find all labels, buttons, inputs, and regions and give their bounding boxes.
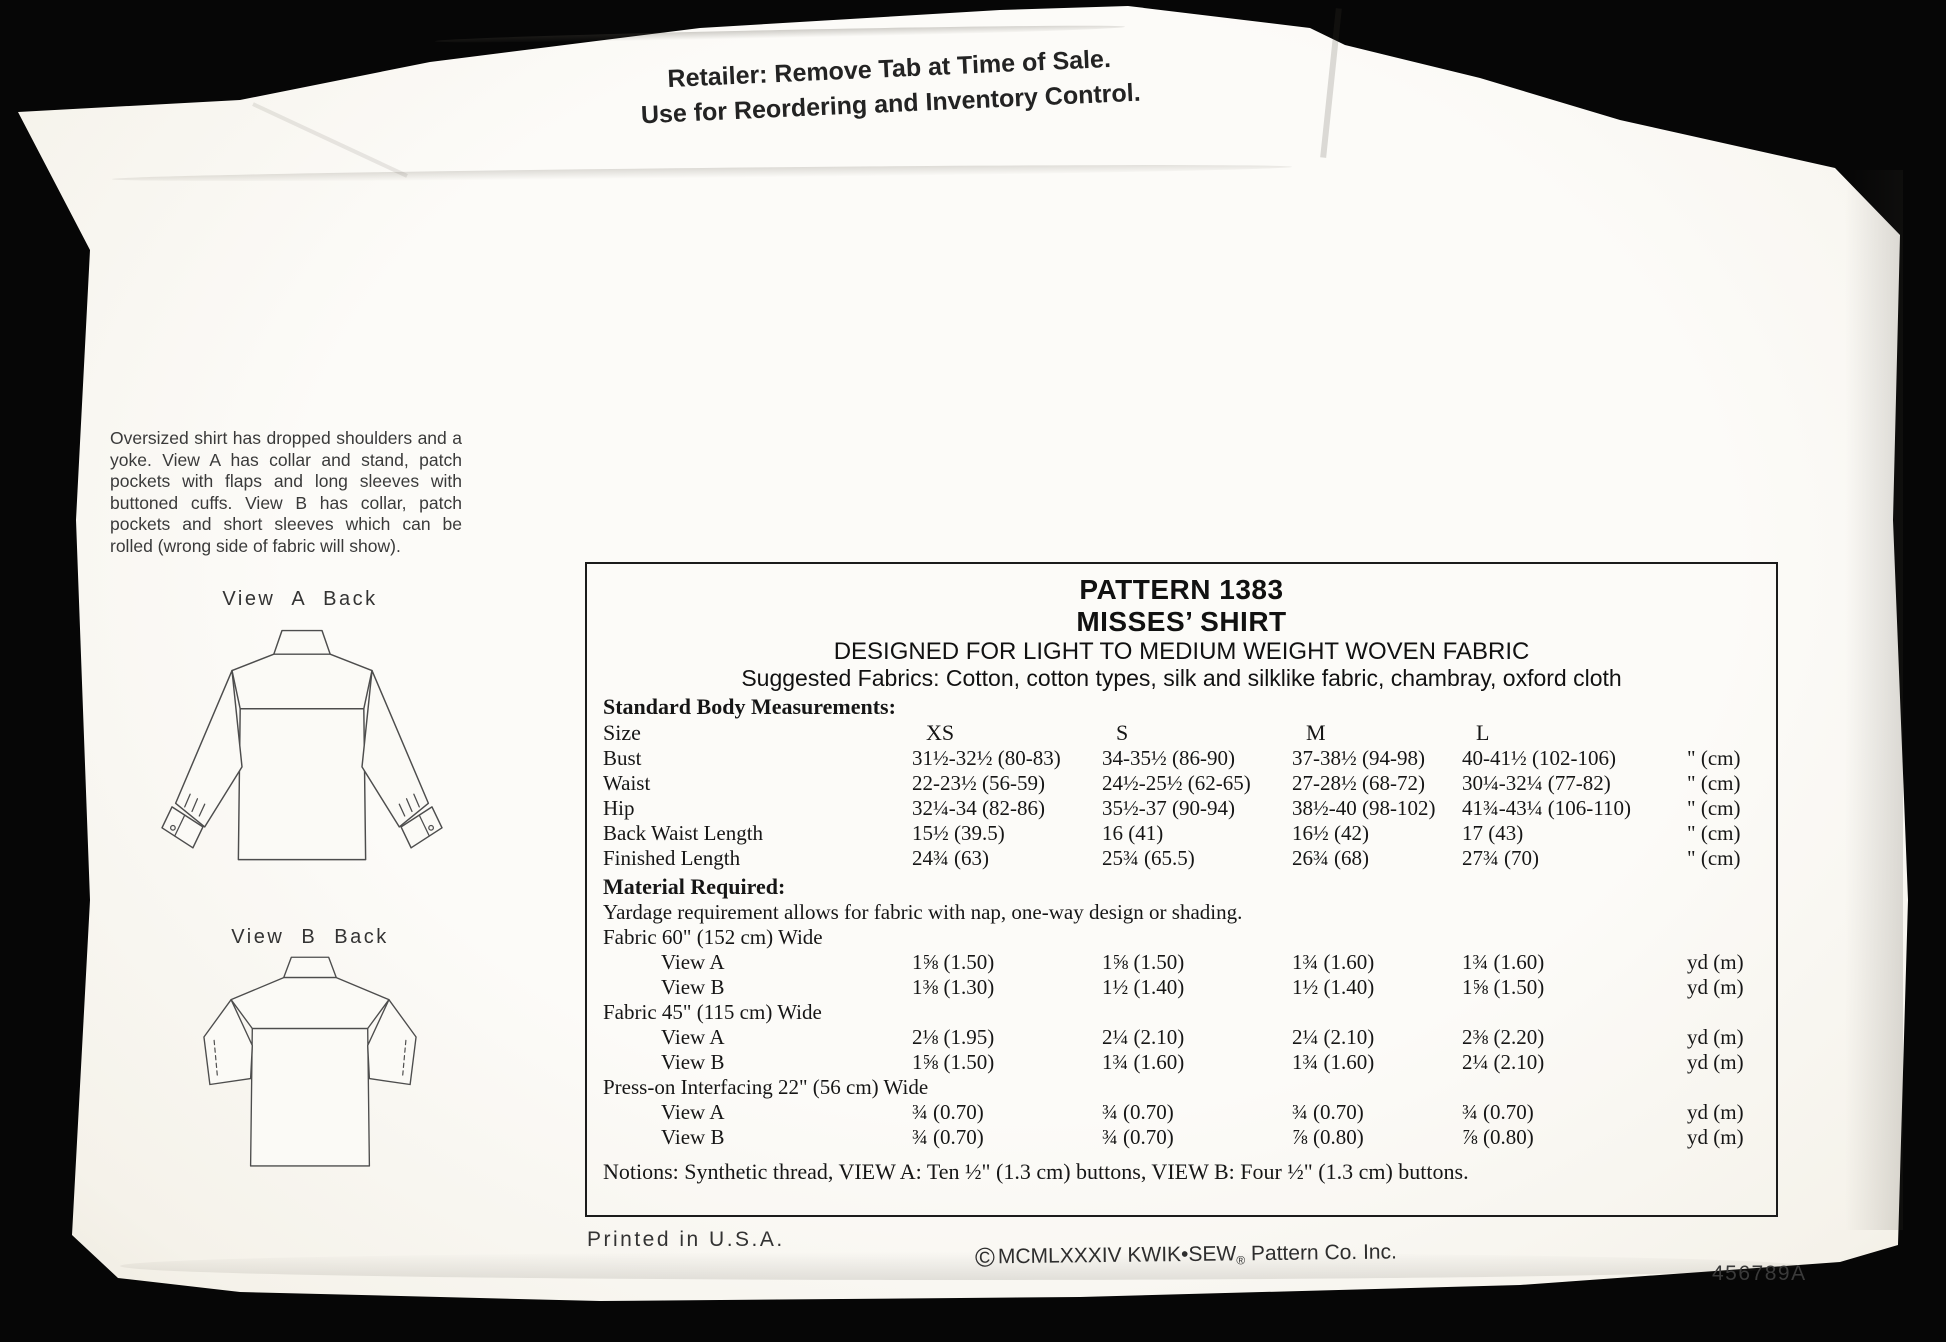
row-label: View A (603, 1100, 912, 1125)
value-xs: ¾ (0.70) (912, 1125, 1102, 1150)
row-label: Bust (603, 746, 912, 771)
value-s: 16 (41) (1102, 821, 1292, 846)
value-l: 41¾-43¼ (106-110) (1462, 796, 1687, 821)
value-s: 2¼ (2.10) (1102, 1025, 1292, 1050)
pattern-info-box: PATTERN 1383 MISSES’ SHIRT DESIGNED FOR … (585, 562, 1778, 1217)
designed-for: DESIGNED FOR LIGHT TO MEDIUM WEIGHT WOVE… (587, 638, 1776, 665)
pattern-number: PATTERN 1383 (587, 574, 1776, 606)
measurement-row-bust: Bust 31½-32½ (80-83) 34-35½ (86-90) 37-3… (587, 746, 1776, 771)
size-l: L (1462, 720, 1687, 746)
unit: " (cm) (1687, 771, 1776, 796)
material-row-60-view-b: View B 1⅜ (1.30) 1½ (1.40) 1½ (1.40) 1⅝ … (587, 975, 1776, 1000)
value-s: 35½-37 (90-94) (1102, 796, 1292, 821)
value-xs: 1⅜ (1.30) (912, 975, 1102, 1000)
value-m: 26¾ (68) (1292, 846, 1462, 871)
row-label: Back Waist Length (603, 821, 912, 846)
material-row-60-view-a: View A 1⅝ (1.50) 1⅝ (1.50) 1¾ (1.60) 1¾ … (587, 950, 1776, 975)
suggested-fabrics: Suggested Fabrics: Cotton, cotton types,… (587, 665, 1776, 691)
registered-trademark-icon: ® (1236, 1253, 1245, 1267)
row-label: Waist (603, 771, 912, 796)
value-l: ¾ (0.70) (1462, 1100, 1687, 1125)
row-label: View B (603, 1050, 912, 1075)
measurement-row-finished-length: Finished Length 24¾ (63) 25¾ (65.5) 26¾ … (587, 846, 1776, 871)
value-s: 1⅝ (1.50) (1102, 950, 1292, 975)
pattern-name: MISSES’ SHIRT (587, 606, 1776, 638)
value-s: ¾ (0.70) (1102, 1125, 1292, 1150)
value-l: 1¾ (1.60) (1462, 950, 1687, 975)
value-s: ¾ (0.70) (1102, 1100, 1292, 1125)
row-label: View A (603, 950, 912, 975)
unit: yd (m) (1687, 950, 1776, 975)
value-xs: 2⅛ (1.95) (912, 1025, 1102, 1050)
view-a-back-drawing (152, 616, 452, 896)
value-xs: 24¾ (63) (912, 846, 1102, 871)
value-l: 40-41½ (102-106) (1462, 746, 1687, 771)
value-l: 2¼ (2.10) (1462, 1050, 1687, 1075)
fabric-45-heading: Fabric 45" (115 cm) Wide (587, 1000, 1776, 1025)
value-m: ⅞ (0.80) (1292, 1125, 1462, 1150)
value-m: 27-28½ (68-72) (1292, 771, 1462, 796)
value-l: 17 (43) (1462, 821, 1687, 846)
value-xs: 22-23½ (56-59) (912, 771, 1102, 796)
value-s: 1¾ (1.60) (1102, 1050, 1292, 1075)
value-l: 27¾ (70) (1462, 846, 1687, 871)
size-label: Size (603, 720, 912, 746)
stock-number: 456789A (1712, 1262, 1807, 1286)
value-l: 2⅜ (2.20) (1462, 1025, 1687, 1050)
value-xs: ¾ (0.70) (912, 1100, 1102, 1125)
material-heading: Material Required: (587, 874, 1776, 900)
value-l: ⅞ (0.80) (1462, 1125, 1687, 1150)
unit: yd (m) (1687, 975, 1776, 1000)
size-m: M (1292, 720, 1462, 746)
value-m: 1¾ (1.60) (1292, 1050, 1462, 1075)
row-label: Hip (603, 796, 912, 821)
value-l: 30¼-32¼ (77-82) (1462, 771, 1687, 796)
notions-line: Notions: Synthetic thread, VIEW A: Ten ½… (587, 1158, 1776, 1186)
row-label: View B (603, 1125, 912, 1150)
value-m: 1½ (1.40) (1292, 975, 1462, 1000)
material-row-45-view-a: View A 2⅛ (1.95) 2¼ (2.10) 2¼ (2.10) 2⅜ … (587, 1025, 1776, 1050)
value-xs: 1⅝ (1.50) (912, 1050, 1102, 1075)
size-s: S (1102, 720, 1292, 746)
value-l: 1⅝ (1.50) (1462, 975, 1687, 1000)
material-row-45-view-b: View B 1⅝ (1.50) 1¾ (1.60) 1¾ (1.60) 2¼ … (587, 1050, 1776, 1075)
value-s: 25¾ (65.5) (1102, 846, 1292, 871)
value-m: 16½ (42) (1292, 821, 1462, 846)
copyright-line: ©MCMLXXXIV KWIK•SEW® Pattern Co. Inc. (975, 1237, 1397, 1273)
material-row-interfacing-view-a: View A ¾ (0.70) ¾ (0.70) ¾ (0.70) ¾ (0.7… (587, 1100, 1776, 1125)
material-row-interfacing-view-b: View B ¾ (0.70) ¾ (0.70) ⅞ (0.80) ⅞ (0.8… (587, 1125, 1776, 1150)
value-m: 37-38½ (94-98) (1292, 746, 1462, 771)
size-unit (1687, 720, 1776, 746)
value-xs: 31½-32½ (80-83) (912, 746, 1102, 771)
printed-in-usa: Printed in U.S.A. (587, 1228, 785, 1252)
value-s: 1½ (1.40) (1102, 975, 1292, 1000)
yardage-note: Yardage requirement allows for fabric wi… (587, 900, 1776, 925)
size-header-row: Size XS S M L (587, 720, 1776, 746)
measurements-heading: Standard Body Measurements: (587, 694, 1776, 720)
unit: " (cm) (1687, 796, 1776, 821)
copyright-tail: Pattern Co. Inc. (1245, 1240, 1397, 1265)
value-m: 2¼ (2.10) (1292, 1025, 1462, 1050)
measurement-row-waist: Waist 22-23½ (56-59) 24½-25½ (62-65) 27-… (587, 771, 1776, 796)
row-label: View B (603, 975, 912, 1000)
view-b-label: View B Back (175, 926, 445, 949)
view-a-label: View A Back (165, 588, 435, 611)
unit: " (cm) (1687, 846, 1776, 871)
unit: " (cm) (1687, 746, 1776, 771)
value-xs: 15½ (39.5) (912, 821, 1102, 846)
value-s: 34-35½ (86-90) (1102, 746, 1292, 771)
value-xs: 1⅝ (1.50) (912, 950, 1102, 975)
unit: yd (m) (1687, 1125, 1776, 1150)
scanned-pattern-envelope-back: Retailer: Remove Tab at Time of Sale. Us… (0, 0, 1946, 1342)
value-s: 24½-25½ (62-65) (1102, 771, 1292, 796)
value-xs: 32¼-34 (82-86) (912, 796, 1102, 821)
fabric-60-heading: Fabric 60" (152 cm) Wide (587, 925, 1776, 950)
unit: yd (m) (1687, 1100, 1776, 1125)
garment-description: Oversized shirt has dropped shoulders an… (110, 428, 462, 557)
size-xs: XS (912, 720, 1102, 746)
measurement-row-hip: Hip 32¼-34 (82-86) 35½-37 (90-94) 38½-40… (587, 796, 1776, 821)
row-label: View A (603, 1025, 912, 1050)
unit: yd (m) (1687, 1050, 1776, 1075)
unit: yd (m) (1687, 1025, 1776, 1050)
copyright-text: MCMLXXXIV KWIK•SEW (998, 1242, 1237, 1268)
measurement-row-back-waist-length: Back Waist Length 15½ (39.5) 16 (41) 16½… (587, 821, 1776, 846)
value-m: ¾ (0.70) (1292, 1100, 1462, 1125)
view-b-back-drawing (170, 950, 450, 1180)
copyright-icon: © (975, 1242, 998, 1272)
unit: " (cm) (1687, 821, 1776, 846)
value-m: 1¾ (1.60) (1292, 950, 1462, 975)
value-m: 38½-40 (98-102) (1292, 796, 1462, 821)
interfacing-heading: Press-on Interfacing 22" (56 cm) Wide (587, 1075, 1776, 1100)
row-label: Finished Length (603, 846, 912, 871)
